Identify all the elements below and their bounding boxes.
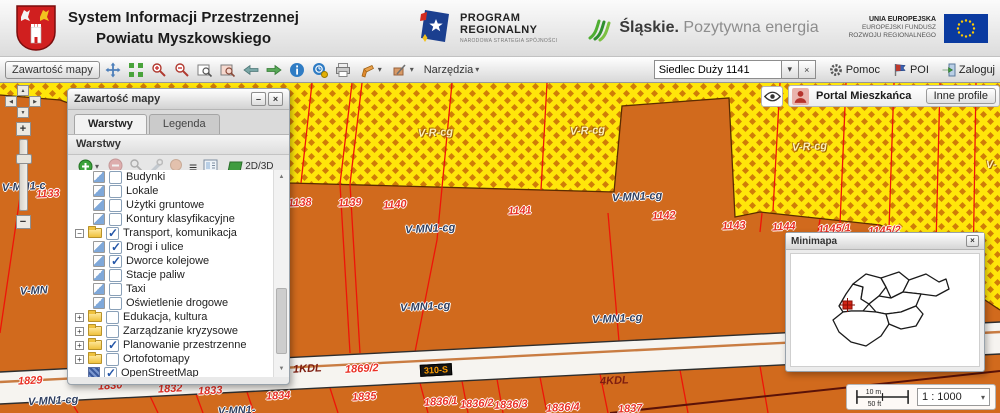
layer-visibility-checkbox[interactable] [109, 213, 122, 226]
parcel-number-label: 1836/3 [494, 398, 528, 412]
scale-bar: 10 m 50 ft [852, 386, 913, 408]
pan-up-button[interactable]: ▲ [17, 85, 29, 96]
parcel-number-label: 1140 [383, 198, 407, 211]
zoom-out-button[interactable]: − [16, 215, 31, 229]
parcel-number-label: 1837 [618, 402, 643, 413]
layer-icon [93, 199, 105, 211]
person-icon [792, 88, 809, 105]
layer-visibility-checkbox[interactable] [109, 185, 122, 198]
header: System Informacji Przestrzennej Powiatu … [0, 0, 1000, 57]
layers-panel-titlebar[interactable]: Zawartość mapy – × [68, 89, 289, 110]
eu-label-1: UNIA EUROPEJSKA [849, 16, 936, 25]
road-name-label: 4KDL [600, 374, 629, 387]
gear-icon [829, 63, 843, 77]
tab-legenda[interactable]: Legenda [149, 114, 220, 134]
zone-code-label: V-MN [20, 284, 48, 297]
zone-code-label: V-MN1-cg [400, 300, 451, 315]
folder-icon [88, 340, 102, 350]
expand-toggle-icon[interactable]: + [75, 327, 84, 336]
scroll-down-button[interactable]: ▼ [274, 362, 289, 377]
eye-icon [764, 91, 781, 102]
parcel-number-label: 1141 [508, 204, 532, 217]
tools-menu-label: Narzędzia [424, 64, 474, 76]
program-regionalny-logo: PROGRAM REGIONALNY NARODOWA STRATEGIA SP… [419, 8, 557, 48]
layer-tree-item[interactable]: −Transport, komunikacja [75, 226, 271, 240]
layer-visibility-checkbox[interactable] [109, 241, 122, 254]
county-crest-logo [16, 5, 56, 51]
pan-tool-button[interactable] [104, 60, 123, 79]
minimap-county-outline [791, 254, 981, 369]
layer-icon [93, 171, 105, 183]
tools-menu[interactable]: Narzędzia ▾ [421, 62, 483, 78]
slaskie-name: Śląskie. [619, 19, 679, 36]
zone-code-label: V-MN1-cg [612, 190, 663, 205]
layer-tree-scrollbar[interactable]: ▲ ▼ [273, 170, 289, 377]
login-button[interactable]: Zaloguj [942, 63, 995, 77]
eu-flag-icon [944, 14, 988, 43]
login-label: Zaloguj [959, 64, 995, 76]
minimap-title: Minimapa [791, 236, 837, 247]
parcel-number-label: 1833 [198, 384, 223, 397]
search-dropdown-button[interactable]: ▾ [782, 60, 799, 79]
scale-meters-label: 10 m [866, 389, 882, 396]
layer-label: Planowanie przestrzenne [123, 339, 247, 351]
layer-label: Użytki gruntowe [126, 199, 204, 211]
pan-left-button[interactable]: ◀ [5, 96, 17, 107]
layer-visibility-checkbox[interactable] [109, 255, 122, 268]
annotate-caret-icon: ▾ [410, 65, 414, 74]
panel-minimize-button[interactable]: – [251, 92, 266, 106]
parcel-number-label: 1836/2 [460, 397, 494, 411]
layer-label: OpenStreetMap [121, 367, 199, 377]
partner-logos: PROGRAM REGIONALNY NARODOWA STRATEGIA SP… [419, 8, 992, 48]
folder-icon [88, 228, 102, 238]
layer-tree-item[interactable]: Oświetlenie drogowe [75, 296, 271, 310]
identify-history-button[interactable] [311, 60, 330, 79]
map-viewport[interactable]: V-R-cgV-R-cgV-R-cgV-V-MN1-cgV-MN1-cgV-MN… [0, 83, 1000, 413]
layer-visibility-checkbox[interactable] [106, 227, 119, 240]
parcel-number-label: 1139 [338, 196, 362, 209]
scroll-up-button[interactable]: ▲ [274, 170, 289, 185]
layer-tree: BudynkiLokaleUżytki gruntoweKontury klas… [68, 170, 289, 377]
layer-label: Dworce kolejowe [126, 255, 209, 267]
parcel-number-label: 1143 [722, 219, 746, 232]
window-zoom-in-button[interactable] [196, 60, 215, 79]
help-button[interactable]: Pomoc [829, 63, 880, 77]
program-label-2: REGIONALNY [460, 24, 557, 36]
layer-tree-item[interactable]: Drogi i ulice [75, 240, 271, 254]
layer-visibility-checkbox[interactable] [109, 283, 122, 296]
login-icon [942, 63, 956, 77]
zone-code-label: V-MN1-cg [405, 222, 456, 237]
panel-close-button[interactable]: × [268, 92, 283, 106]
layers-panel-tabs: Warstwy Legenda [68, 110, 289, 134]
help-label: Pomoc [846, 64, 880, 76]
scale-ratio-value: 1 : 1000 [922, 391, 962, 403]
other-profiles-button[interactable]: Inne profile [926, 88, 996, 104]
zoom-out-tool-button[interactable] [173, 60, 192, 79]
identify-button[interactable] [288, 60, 307, 79]
measure-caret-icon: ▾ [378, 65, 382, 74]
zone-code-label: V-R-cg [792, 140, 828, 154]
map-content-button[interactable]: Zawartość mapy [5, 61, 100, 79]
parcel-number-label: 1138 [288, 196, 312, 209]
parcel-number-label: 1869/2 [345, 362, 379, 376]
next-view-button[interactable] [265, 60, 284, 79]
flag-icon [893, 63, 907, 77]
parcel-number-label: 1829 [18, 374, 43, 387]
expand-toggle-icon[interactable]: + [75, 341, 84, 350]
annotate-tool-button[interactable]: ▾ [389, 60, 417, 80]
minimap-close-button[interactable]: × [966, 235, 979, 247]
minimap-window: Minimapa × [785, 232, 985, 372]
scale-ratio-caret-icon: ▾ [981, 393, 985, 402]
layer-visibility-checkbox[interactable] [106, 325, 119, 338]
visibility-toggle-button[interactable] [761, 86, 783, 107]
poi-button[interactable]: POI [893, 63, 929, 77]
poi-label: POI [910, 64, 929, 76]
zone-code-label: V-MN1-cg [592, 312, 643, 327]
page-title: System Informacji Przestrzennej Powiatu … [68, 7, 299, 49]
measure-tool-button[interactable]: ▾ [357, 60, 385, 80]
folder-icon [88, 326, 102, 336]
scrollbar-thumb[interactable] [276, 288, 287, 354]
layer-visibility-checkbox[interactable] [104, 367, 117, 378]
layer-tree-item[interactable]: Dworce kolejowe [75, 254, 271, 268]
layer-visibility-checkbox[interactable] [109, 171, 122, 184]
layer-tree-item[interactable]: Budynki [75, 170, 271, 184]
layer-label: Taxi [126, 283, 146, 295]
tools-caret-icon: ▾ [475, 65, 479, 74]
zone-code-label: V- [986, 159, 997, 172]
layer-visibility-checkbox[interactable] [109, 269, 122, 282]
layer-icon [93, 213, 105, 225]
pan-down-button[interactable]: ▼ [17, 107, 29, 118]
road-name-label: 1KDL [293, 362, 322, 375]
layer-icon [93, 255, 105, 267]
zone-code-label: V-R-cg [570, 124, 606, 138]
layer-tree-area: BudynkiLokaleUżytki gruntoweKontury klas… [68, 170, 289, 377]
layer-icon [93, 297, 105, 309]
print-button[interactable] [334, 60, 353, 79]
main-toolbar: Zawartość mapy [0, 57, 1000, 83]
layer-label: Edukacja, kultura [123, 311, 207, 323]
layer-tree-item[interactable]: Taxi [75, 282, 271, 296]
collapse-toggle-icon[interactable]: − [75, 229, 84, 238]
layer-label: Ortofotomapy [123, 353, 190, 365]
layers-panel-window: Zawartość mapy – × Warstwy Legenda Warst… [67, 88, 290, 385]
brand: System Informacji Przestrzennej Powiatu … [16, 5, 299, 51]
map-nav-controls: ▲ ◀▶ ▼ + − [5, 85, 41, 229]
layer-tree-item[interactable]: +Planowanie przestrzenne [75, 338, 271, 352]
layer-visibility-checkbox[interactable] [106, 353, 119, 366]
layer-visibility-checkbox[interactable] [109, 199, 122, 212]
road-number-badge: 310-S [420, 363, 453, 377]
full-extent-button[interactable] [127, 60, 146, 79]
active-profile-label: Portal Mieszkańca [816, 90, 911, 102]
parcel-number-label: 1836/4 [546, 401, 580, 413]
program-label-1: PROGRAM [460, 12, 557, 24]
minimap-titlebar[interactable]: Minimapa × [786, 233, 984, 250]
layers-section-title: Warstwy [68, 134, 289, 155]
osm-layer-icon [88, 367, 100, 377]
layer-label: Stacje paliw [126, 269, 185, 281]
app-root: System Informacji Przestrzennej Powiatu … [0, 0, 1000, 413]
layer-label: Budynki [126, 171, 165, 183]
search-combo: ▾ × [654, 60, 816, 79]
folder-icon [88, 354, 102, 364]
parcel-number-label: 1142 [652, 209, 676, 222]
scale-widget: 10 m 50 ft 1 : 1000 ▾ [846, 384, 996, 410]
layer-tree-item[interactable]: Stacje paliw [75, 268, 271, 282]
layer-visibility-checkbox[interactable] [109, 297, 122, 310]
page-title-line2: Powiatu Myszkowskiego [68, 28, 299, 49]
program-subtitle: NARODOWA STRATEGIA SPÓJNOŚCI [460, 38, 557, 44]
layer-icon [93, 185, 105, 197]
zone-code-label: V-MN1- [218, 404, 256, 413]
layer-label: Kontury klasyfikacyjne [126, 213, 235, 225]
profile-bar: Portal Mieszkańca Inne profile [788, 85, 1000, 107]
expand-toggle-icon[interactable]: + [75, 313, 84, 322]
slaskie-waves-icon [587, 15, 613, 42]
layer-icon [93, 269, 105, 281]
layer-visibility-checkbox[interactable] [106, 311, 119, 324]
eu-label-3: ROZWOJU REGIONALNEGO [849, 32, 936, 40]
page-title-line1: System Informacji Przestrzennej [68, 7, 299, 28]
zone-code-label: V-R-cg [418, 126, 454, 140]
layer-tree-item[interactable]: +Zarządzanie kryzysowe [75, 324, 271, 338]
previous-view-button[interactable] [242, 60, 261, 79]
slaskie-logo: Śląskie. Pozytywna energia [587, 15, 818, 42]
search-input[interactable] [654, 60, 782, 79]
window-zoom-out-button[interactable] [219, 60, 238, 79]
layer-tree-item[interactable]: +Edukacja, kultura [75, 310, 271, 324]
program-flag-icon [419, 8, 453, 48]
parcel-number-label: 1836/1 [424, 395, 458, 409]
tab-warstwy[interactable]: Warstwy [74, 114, 147, 134]
eu-logo: UNIA EUROPEJSKA EUROPEJSKI FUNDUSZ ROZWO… [849, 14, 988, 43]
zoom-in-tool-button[interactable] [150, 60, 169, 79]
zoom-in-button[interactable]: + [16, 122, 31, 136]
parcel-number-label: 1835 [352, 390, 377, 403]
layer-label: Transport, komunikacja [123, 227, 237, 239]
eu-label-2: EUROPEJSKI FUNDUSZ [849, 24, 936, 32]
layer-tree-item[interactable]: Kontury klasyfikacyjne [75, 212, 271, 226]
layer-label: Drogi i ulice [126, 241, 183, 253]
scale-feet-label: 50 ft [868, 401, 881, 408]
layer-label: Oświetlenie drogowe [126, 297, 228, 309]
zoom-slider[interactable] [19, 139, 28, 211]
layers-panel-title: Zawartość mapy [74, 93, 160, 105]
zoom-slider-handle[interactable] [16, 154, 32, 164]
folder-icon [88, 312, 102, 322]
layer-tree-item[interactable]: Użytki gruntowe [75, 198, 271, 212]
layer-label: Lokale [126, 185, 158, 197]
parcel-number-label: 1834 [266, 389, 291, 402]
minimap-body[interactable] [790, 253, 980, 367]
pan-right-button[interactable]: ▶ [29, 96, 41, 107]
slaskie-tagline: Pozytywna energia [683, 19, 818, 36]
scale-ratio-select[interactable]: 1 : 1000 ▾ [917, 388, 990, 406]
layer-tree-item[interactable]: OpenStreetMap [75, 366, 271, 377]
layer-icon [93, 241, 105, 253]
layer-tree-item[interactable]: Lokale [75, 184, 271, 198]
layer-icon [93, 283, 105, 295]
layer-visibility-checkbox[interactable] [106, 339, 119, 352]
search-clear-button[interactable]: × [799, 60, 816, 79]
layer-tree-item[interactable]: +Ortofotomapy [75, 352, 271, 366]
zone-code-label: V-MN1-cg [28, 394, 79, 409]
expand-toggle-icon[interactable]: + [75, 355, 84, 364]
layer-label: Zarządzanie kryzysowe [123, 325, 238, 337]
